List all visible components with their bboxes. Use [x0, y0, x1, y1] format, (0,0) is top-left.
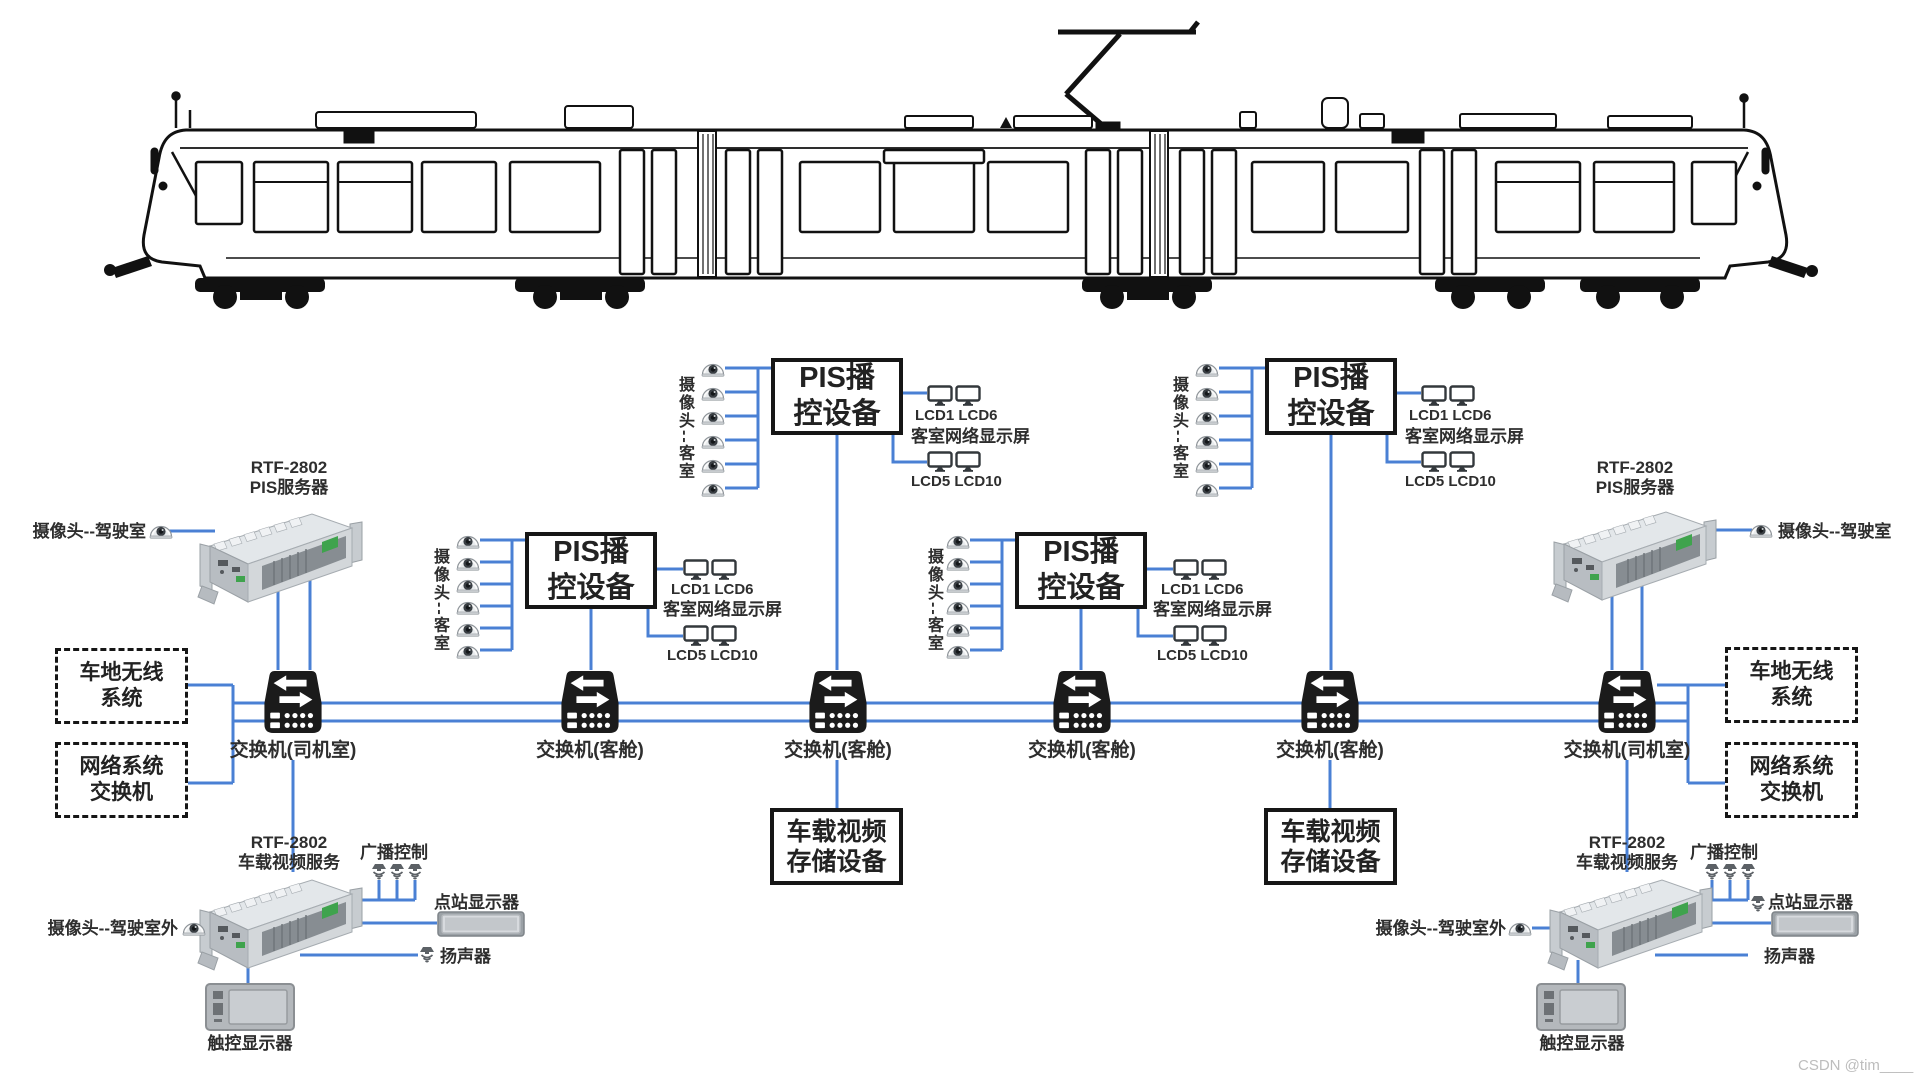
- dome-camera-icon: [149, 521, 173, 539]
- cabin-camera-label: 摄像头--客室: [1170, 376, 1186, 486]
- dome-camera-icon: [701, 431, 725, 449]
- switch-label-6: 交换机(司机室): [1562, 740, 1692, 762]
- cabin-screen-label: 客室网络显示屏: [663, 600, 782, 620]
- broadcast-speaker-icon: [388, 863, 406, 880]
- lcd-top-label: LCD1 LCD6: [915, 407, 991, 424]
- dome-camera-icon: [946, 553, 970, 571]
- dome-camera-icon: [701, 359, 725, 377]
- lcd-monitor-icon: [1173, 559, 1199, 580]
- pis-controller-box: PIS播 控设备: [1265, 358, 1397, 435]
- pis-box-line2: 控设备: [547, 571, 634, 606]
- dome-camera-icon: [1195, 383, 1219, 401]
- lcd-monitor-icon: [711, 559, 737, 580]
- lcd-top-label: LCD1 LCD6: [1409, 407, 1485, 424]
- dome-camera-icon: [456, 641, 480, 659]
- pis-controller-box: PIS播 控设备: [525, 532, 657, 609]
- lcd-monitor-icon: [1173, 625, 1199, 646]
- pis-box-line1: PIS播: [553, 535, 629, 570]
- broadcast-speaker-icon: [406, 863, 424, 880]
- pis-server-left-device: [196, 502, 366, 612]
- wireless-left-line1: 车地无线: [80, 660, 164, 686]
- switch-label-2: 交换机(客舱): [525, 740, 655, 762]
- touch-display-device: [205, 983, 295, 1031]
- switch-label-5: 交换机(客舱): [1265, 740, 1395, 762]
- wireless-left-line2: 系统: [101, 686, 143, 712]
- switch-icon-5: [1299, 669, 1361, 735]
- switch-icon-3: [807, 669, 869, 735]
- storage-line2: 存储设备: [1280, 847, 1380, 877]
- dome-camera-icon: [456, 619, 480, 637]
- cabin-screen-label: 客室网络显示屏: [911, 427, 1030, 447]
- broadcast-speaker-icon: [1703, 863, 1721, 880]
- dome-camera-icon: [456, 531, 480, 549]
- lcd-monitor-icon: [683, 559, 709, 580]
- network-right-line2: 交换机: [1760, 780, 1823, 806]
- touch-display-label: 触控显示器: [200, 1034, 300, 1054]
- dome-camera-icon: [1195, 479, 1219, 497]
- wireless-system-box-right: 车地无线 系统: [1725, 647, 1858, 723]
- dome-camera-icon: [946, 619, 970, 637]
- lcd-bottom-label: LCD5 LCD10: [1157, 647, 1245, 664]
- touch-display-device: [1536, 983, 1626, 1031]
- video-server-right-device: [1546, 868, 1716, 978]
- lcd-monitor-icon: [1421, 385, 1447, 406]
- speaker-icon: [1749, 895, 1767, 912]
- network-switch-box-right: 网络系统 交换机: [1725, 742, 1858, 818]
- dome-camera-icon: [1195, 407, 1219, 425]
- lcd-monitor-icon: [683, 625, 709, 646]
- lcd-monitor-icon: [1201, 559, 1227, 580]
- cab-camera-left-label: 摄像头--驾驶室: [20, 522, 146, 542]
- dome-camera-icon: [701, 383, 725, 401]
- dome-camera-icon: [946, 531, 970, 549]
- outside-camera-left-label: 摄像头--驾驶室外: [8, 919, 178, 939]
- dome-camera-icon: [946, 641, 970, 659]
- lcd-monitor-icon: [1201, 625, 1227, 646]
- storage-line1: 车载视频: [786, 817, 886, 847]
- speaker-icon: [418, 946, 436, 963]
- wireless-right-line1: 车地无线: [1750, 659, 1834, 685]
- network-left-line2: 交换机: [90, 780, 153, 806]
- video-server-left-device: [196, 868, 366, 978]
- lcd-monitor-icon: [1421, 451, 1447, 472]
- lcd-monitor-icon: [927, 385, 953, 406]
- lcd-monitor-icon: [927, 451, 953, 472]
- video-server-right-model: RTF-2802: [1542, 833, 1712, 853]
- outside-camera-right-label: 摄像头--驾驶室外: [1358, 919, 1506, 939]
- lcd-monitor-icon: [711, 625, 737, 646]
- pis-server-right-device: [1550, 500, 1720, 610]
- cabin-camera-label: 摄像头--客室: [431, 548, 447, 658]
- lcd-bottom-label: LCD5 LCD10: [667, 647, 755, 664]
- cabin-camera-label: 摄像头--客室: [925, 548, 941, 658]
- broadcast-speaker-icon: [370, 863, 388, 880]
- switch-icon-6: [1596, 669, 1658, 735]
- dome-camera-icon: [456, 553, 480, 571]
- dome-camera-icon: [1749, 520, 1773, 538]
- lcd-monitor-icon: [955, 451, 981, 472]
- speaker-label: 扬声器: [1764, 947, 1815, 967]
- storage-line2: 存储设备: [786, 847, 886, 877]
- dome-camera-icon: [1195, 431, 1219, 449]
- dome-camera-icon: [1195, 455, 1219, 473]
- pis-server-right-model: RTF-2802: [1550, 458, 1720, 478]
- switch-icon-2: [559, 669, 621, 735]
- dome-camera-icon: [456, 575, 480, 593]
- switch-icon-4: [1051, 669, 1113, 735]
- switch-icon-1: [262, 669, 324, 735]
- cab-camera-right-label: 摄像头--驾驶室: [1778, 522, 1891, 542]
- dome-camera-icon: [701, 407, 725, 425]
- pis-server-right-label: RTF-2802 PIS服务器: [1550, 458, 1720, 498]
- pis-server-left-name: PIS服务器: [204, 478, 374, 498]
- pis-box-line1: PIS播: [799, 361, 875, 396]
- pis-network-topology-diagram: RTF-2802 PIS服务器 摄像头--驾驶室 车地无线 系统 网络系统 交换…: [0, 0, 1920, 1080]
- broadcast-speaker-icon: [1739, 863, 1757, 880]
- speaker-label: 扬声器: [440, 947, 491, 967]
- pis-server-left-label: RTF-2802 PIS服务器: [204, 458, 374, 498]
- cabin-screen-label: 客室网络显示屏: [1153, 600, 1272, 620]
- wireless-right-line2: 系统: [1771, 685, 1813, 711]
- dome-camera-icon: [946, 575, 970, 593]
- network-switch-box-left: 网络系统 交换机: [55, 742, 188, 818]
- network-left-line1: 网络系统: [80, 754, 164, 780]
- lcd-top-label: LCD1 LCD6: [671, 581, 747, 598]
- lcd-monitor-icon: [1449, 385, 1475, 406]
- lcd-top-label: LCD1 LCD6: [1161, 581, 1237, 598]
- dome-camera-icon: [946, 597, 970, 615]
- dome-camera-icon: [1195, 359, 1219, 377]
- storage-line1: 车载视频: [1280, 817, 1380, 847]
- network-right-line1: 网络系统: [1750, 754, 1834, 780]
- pis-box-line2: 控设备: [1287, 397, 1374, 432]
- pis-server-left-model: RTF-2802: [204, 458, 374, 478]
- dome-camera-icon: [701, 479, 725, 497]
- dome-camera-icon: [456, 597, 480, 615]
- pis-box-line1: PIS播: [1293, 361, 1369, 396]
- pis-box-line1: PIS播: [1043, 535, 1119, 570]
- pis-controller-box: PIS播 控设备: [1015, 532, 1147, 609]
- station-display-device: [1771, 911, 1859, 937]
- broadcast-control-label: 广播控制: [1690, 843, 1758, 863]
- lcd-bottom-label: LCD5 LCD10: [911, 473, 999, 490]
- pis-server-right-name: PIS服务器: [1550, 478, 1720, 498]
- broadcast-control-label: 广播控制: [360, 843, 428, 863]
- cabin-screen-label: 客室网络显示屏: [1405, 427, 1524, 447]
- station-display-device: [437, 911, 525, 937]
- lcd-monitor-icon: [955, 385, 981, 406]
- cabin-camera-label: 摄像头--客室: [676, 376, 692, 486]
- pis-box-line2: 控设备: [1037, 571, 1124, 606]
- switch-label-1: 交换机(司机室): [228, 740, 358, 762]
- touch-display-label: 触控显示器: [1532, 1034, 1632, 1054]
- video-server-left-model: RTF-2802: [204, 833, 374, 853]
- lcd-monitor-icon: [1449, 451, 1475, 472]
- switch-label-3: 交换机(客舱): [773, 740, 903, 762]
- dome-camera-icon: [182, 918, 206, 936]
- video-storage-box: 车载视频 存储设备: [1264, 808, 1397, 885]
- lcd-bottom-label: LCD5 LCD10: [1405, 473, 1493, 490]
- pis-controller-box: PIS播 控设备: [771, 358, 903, 435]
- pis-box-line2: 控设备: [793, 397, 880, 432]
- video-storage-box: 车载视频 存储设备: [770, 808, 903, 885]
- dome-camera-icon: [1508, 918, 1532, 936]
- dome-camera-icon: [701, 455, 725, 473]
- watermark: CSDN @tim____: [1798, 1057, 1913, 1074]
- broadcast-speaker-icon: [1721, 863, 1739, 880]
- wireless-system-box-left: 车地无线 系统: [55, 648, 188, 724]
- switch-label-4: 交换机(客舱): [1017, 740, 1147, 762]
